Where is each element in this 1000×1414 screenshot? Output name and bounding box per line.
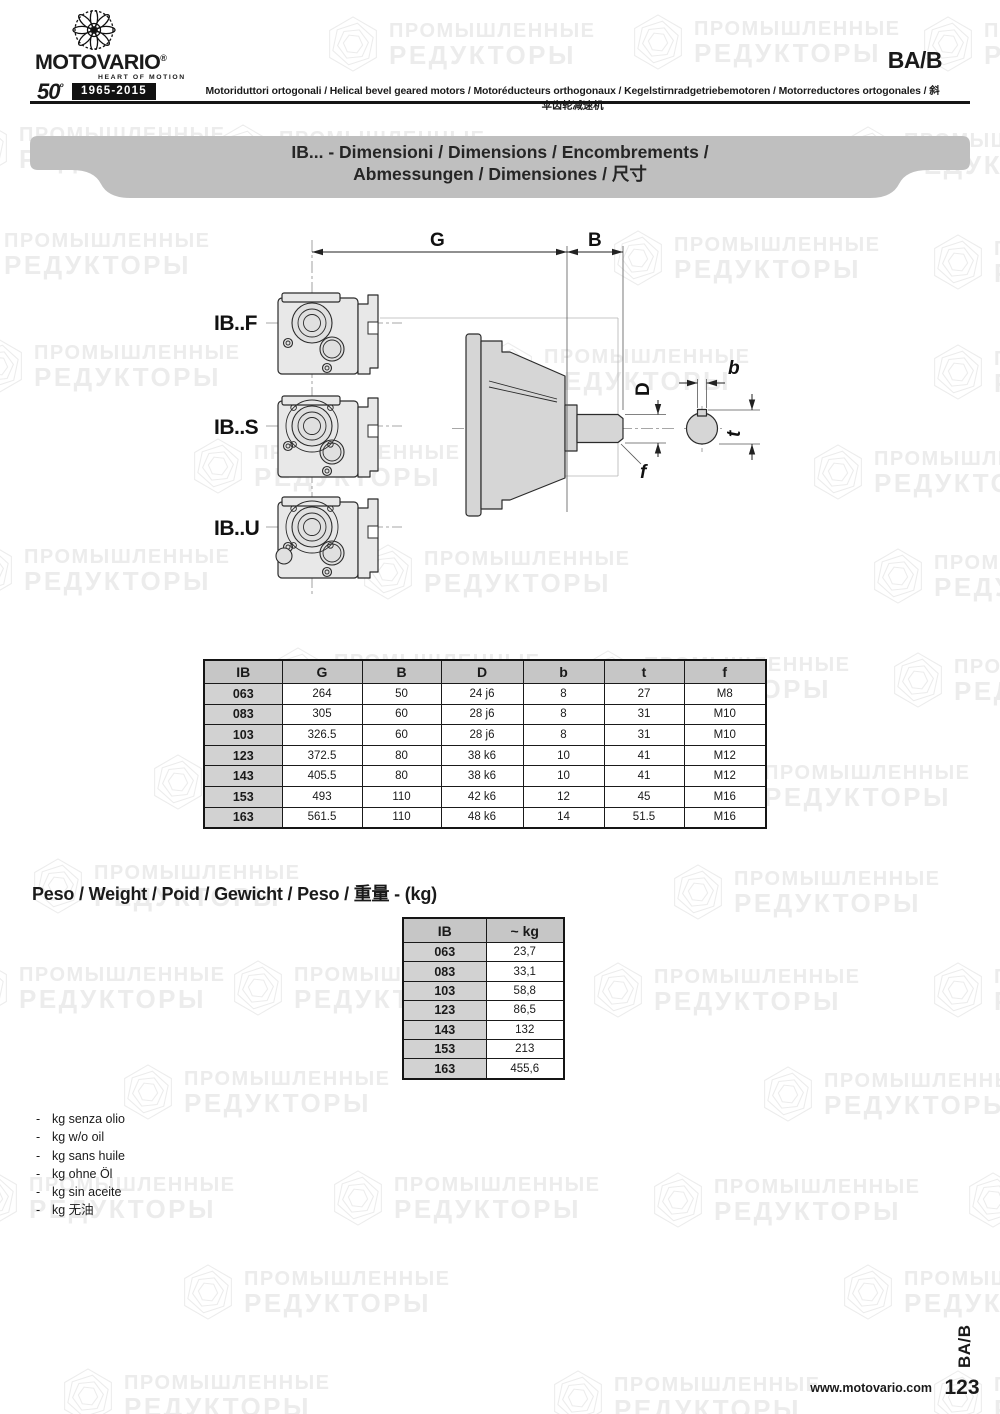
row-label: 123 [403,1001,486,1020]
page-title-line1: IB... - Dimensioni / Dimensions / Encomb… [30,142,970,164]
row-label: 143 [403,1020,486,1039]
watermark: ПРОМЫШЛЕННЫЕ РЕДУКТОРЫ [330,1168,601,1228]
note-dash: - [36,1201,52,1219]
cell: 33,1 [486,962,564,981]
note-line: -kg senza olio [36,1110,125,1128]
row-label: 163 [204,807,282,828]
watermark: ПРОМЫШЛЕННЫЕ РЕДУКТОРЫ [760,1064,1000,1124]
note-text: kg ohne Öl [52,1165,112,1183]
note-dash: - [36,1128,52,1146]
watermark-text: ПРОМЫШЛЕННЫЕ РЕДУКТОРЫ [874,448,1000,497]
note-text: kg sans huile [52,1147,125,1165]
cell: 42 k6 [441,786,523,807]
table-row: 103326.56028 j6831M10 [204,725,766,746]
watermark: ПРОМЫШЛЕННЫЕ РЕДУКТОРЫ [630,12,901,72]
gearbox-front-view-S [278,396,378,477]
note-dash: - [36,1165,52,1183]
cell: 31 [604,725,684,746]
watermark: ПРОМЫШЛЕННЫЕ РЕДУКТОРЫ [60,1366,331,1414]
dim-label-D: D [633,382,654,396]
watermark-text: ПРОМЫШЛЕННЫЕ РЕДУКТОРЫ [994,966,1000,1015]
watermark: ПРОМЫШЛЕННЫЕ РЕДУКТОРЫ [840,1262,1000,1322]
watermark: ПРОМЫШЛЕННЫЕ РЕДУКТОРЫ [930,960,1000,1020]
column-header: IB [204,660,282,684]
shaft-key-section [687,410,718,445]
anniversary-years-badge: 1965-2015 [72,83,156,100]
side-section-code: BA/B [948,1324,982,1368]
watermark: ПРОМЫШЛЕННЫЕ РЕДУКТОРЫ [325,14,596,74]
note-line: -kg 无油 [36,1201,125,1219]
variant-label-F: IB..F [214,312,258,335]
cell: 38 k6 [441,745,523,766]
cell: 372.5 [282,745,362,766]
hexagon-swirl-icon [590,960,646,1020]
page-title-line2: Abmessungen / Dimensiones / 尺寸 [30,164,970,186]
column-header: G [282,660,362,684]
column-header: ~ kg [486,918,564,943]
watermark: ПРОМЫШЛЕННЫЕ РЕДУКТОРЫ [0,224,211,284]
watermark-text: ПРОМЫШЛЕННЫЕ РЕДУКТОРЫ [934,552,1000,601]
note-text: kg senza olio [52,1110,125,1128]
cell: 41 [604,745,684,766]
hexagon-swirl-icon [60,1366,116,1414]
cell: 24 j6 [441,684,523,705]
watermark-text: ПРОМЫШЛЕННЫЕ РЕДУКТОРЫ [994,238,1000,287]
table-row: 163561.511048 k61451.5M16 [204,807,766,828]
watermark-text: ПРОМЫШЛЕННЫЕ РЕДУКТОРЫ [984,20,1000,69]
table-row: 0833056028 j6831M10 [204,704,766,725]
dim-label-B: B [588,230,602,251]
hexagon-swirl-icon [180,1262,236,1322]
cell: M10 [684,725,766,746]
gearbox-front-view-U [276,497,378,578]
watermark: ПРОМЫШЛЕННЫЕ РЕДУКТОРЫ [965,1170,1000,1230]
table-row: 143405.58038 k61041M12 [204,766,766,787]
hexagon-swirl-icon [630,12,686,72]
cell: 14 [523,807,604,828]
table-row: 123372.58038 k61041M12 [204,745,766,766]
weight-heading: Peso / Weight / Poid / Gewicht / Peso / … [32,880,437,906]
cell: M16 [684,807,766,828]
hexagon-swirl-icon [0,118,11,178]
note-text: kg sin aceite [52,1183,121,1201]
row-label: 153 [403,1039,486,1058]
cell: 51.5 [604,807,684,828]
watermark-text: ПРОМЫШЛЕННЫЕ РЕДУКТОРЫ [389,20,596,69]
hexagon-swirl-icon [325,14,381,74]
watermark-text: ПРОМЫШЛЕННЫЕ РЕДУКТОРЫ [394,1174,601,1223]
section-code: BA/B [888,47,942,74]
row-label: 143 [204,766,282,787]
column-header: B [362,660,441,684]
hexagon-swirl-icon [670,862,726,922]
cell: M16 [684,786,766,807]
variant-label-U: IB..U [214,517,259,540]
table-row: 163455,6 [403,1059,564,1079]
page-number: 123 [942,1376,982,1400]
footer-url: www.motovario.com [700,1381,932,1395]
cell: 80 [362,766,441,787]
table-row: 08333,1 [403,962,564,981]
cell: 8 [523,725,604,746]
row-label: 063 [204,684,282,705]
note-line: -kg sans huile [36,1147,125,1165]
dim-label-t: t [724,430,745,437]
column-header: t [604,660,684,684]
watermark: ПРОМЫШЛЕННЫЕ РЕДУКТОРЫ [590,960,861,1020]
header-divider [30,101,970,104]
dim-label-G: G [430,230,445,251]
watermark: ПРОМЫШЛЕННЫЕ РЕДУКТОРЫ [670,862,941,922]
cell: 27 [604,684,684,705]
column-header: IB [403,918,486,943]
cell: 58,8 [486,981,564,1000]
watermark-text: ПРОМЫШЛЕННЫЕ РЕДУКТОРЫ [904,1268,1000,1317]
dim-label-b: b [728,358,740,379]
note-line: -kg ohne Öl [36,1165,125,1183]
registered-mark: ® [160,53,166,63]
table-row: 06323,7 [403,943,564,962]
cell: 28 j6 [441,704,523,725]
cell: M10 [684,704,766,725]
note-dash: - [36,1147,52,1165]
table-row: 12386,5 [403,1001,564,1020]
hexagon-swirl-icon [230,958,286,1018]
cell: 110 [362,807,441,828]
cell: 50 [362,684,441,705]
hexagon-swirl-icon [550,1368,606,1414]
note-dash: - [36,1110,52,1128]
column-header: f [684,660,766,684]
watermark-text: ПРОМЫШЛЕННЫЕ РЕДУКТОРЫ [734,868,941,917]
cell: 110 [362,786,441,807]
weight-table: IB~ kg06323,708333,110358,812386,5143132… [402,917,565,1080]
watermark-text: ПРОМЫШЛЕННЫЕ РЕДУКТОРЫ [654,966,861,1015]
watermark: ПРОМЫШЛЕННЫЕ РЕДУКТОРЫ [650,1170,921,1230]
table-header-row: IBGBDbtf [204,660,766,684]
hexagon-swirl-icon [965,1170,1000,1230]
table-row: 0632645024 j6827M8 [204,684,766,705]
dim-label-f: f [640,462,648,483]
note-text: kg 无油 [52,1201,94,1219]
watermark-text: ПРОМЫШЛЕННЫЕ РЕДУКТОРЫ [714,1176,921,1225]
cell: 45 [604,786,684,807]
cell: 455,6 [486,1059,564,1079]
hexagon-swirl-icon [810,442,866,502]
column-header: b [523,660,604,684]
cell: 8 [523,684,604,705]
row-label: 063 [403,943,486,962]
hexagon-swirl-icon [930,232,986,292]
gearbox-front-view-F [278,293,378,374]
hexagon-swirl-icon [650,1170,706,1230]
watermark-text: ПРОМЫШЛЕННЫЕ РЕДУКТОРЫ [994,348,1000,397]
hexagon-swirl-icon [870,546,926,606]
note-dash: - [36,1183,52,1201]
watermark: ПРОМЫШЛЕННЫЕ РЕДУКТОРЫ [870,546,1000,606]
cell: 493 [282,786,362,807]
watermark-text: ПРОМЫШЛЕННЫЕ РЕДУКТОРЫ [19,964,226,1013]
row-label: 103 [403,981,486,1000]
cell: 405.5 [282,766,362,787]
note-line: -kg sin aceite [36,1183,125,1201]
row-label: 083 [403,962,486,981]
cell: M12 [684,766,766,787]
hexagon-swirl-icon [930,960,986,1020]
watermark-text: ПРОМЫШЛЕННЫЕ РЕДУКТОРЫ [764,762,971,811]
brand-name: MOTOVARIO® [35,50,166,75]
watermark-text: ПРОМЫШЛЕННЫЕ РЕДУКТОРЫ [954,656,1000,705]
variant-label-S: IB..S [214,416,259,439]
cell: 213 [486,1039,564,1058]
gearbox-side-view [466,334,623,516]
row-label: 123 [204,745,282,766]
hexagon-swirl-icon [890,650,946,710]
cell: 28 j6 [441,725,523,746]
row-label: 083 [204,704,282,725]
hexagon-swirl-icon [0,540,16,600]
row-label: 163 [403,1059,486,1079]
watermark: ПРОМЫШЛЕННЫЕ РЕДУКТОРЫ [930,232,1000,292]
page-title: IB... - Dimensioni / Dimensions / Encomb… [30,142,970,185]
column-header: D [441,660,523,684]
note-line: -kg w/o oil [36,1128,125,1146]
watermark: ПРОМЫШЛЕННЫЕ РЕДУКТОРЫ [120,1062,391,1122]
table-row: 153213 [403,1039,564,1058]
cell: 86,5 [486,1001,564,1020]
watermark: ПРОМЫШЛЕННЫЕ РЕДУКТОРЫ [810,442,1000,502]
watermark: ПРОМЫШЛЕННЫЕ РЕДУКТОРЫ [0,958,226,1018]
cell: 10 [523,766,604,787]
row-label: 103 [204,725,282,746]
cell: 31 [604,704,684,725]
notes-list: -kg senza olio-kg w/o oil-kg sans huile-… [36,1110,125,1220]
cell: 561.5 [282,807,362,828]
cell: 305 [282,704,362,725]
row-label: 153 [204,786,282,807]
cell: 60 [362,725,441,746]
hexagon-swirl-icon [330,1168,386,1228]
watermark-text: ПРОМЫШЛЕННЫЕ РЕДУКТОРЫ [4,230,211,279]
cell: 12 [523,786,604,807]
cell: M12 [684,745,766,766]
hexagon-swirl-icon [0,1168,21,1228]
hexagon-swirl-icon [150,752,206,812]
table-row: 10358,8 [403,981,564,1000]
dimension-drawing: IB..F IB..S IB..U G B D b t f [195,212,805,652]
table-row: 15349311042 k61245M16 [204,786,766,807]
cell: 8 [523,704,604,725]
table-row: 143132 [403,1020,564,1039]
cell: 80 [362,745,441,766]
cell: 38 k6 [441,766,523,787]
watermark-text: ПРОМЫШЛЕННЫЕ РЕДУКТОРЫ [124,1372,331,1414]
watermark-text: ПРОМЫШЛЕННЫЕ РЕДУКТОРЫ [184,1068,391,1117]
page-subtitle: Motoriduttori ortogonali / Helical bevel… [204,82,941,112]
watermark: ПРОМЫШЛЕННЫЕ РЕДУКТОРЫ [180,1262,451,1322]
hexagon-swirl-icon [840,1262,896,1322]
watermark-text: ПРОМЫШЛЕННЫЕ РЕДУКТОРЫ [244,1268,451,1317]
cell: 23,7 [486,943,564,962]
dimensions-table: IBGBDbtf0632645024 j6827M80833056028 j68… [203,659,767,829]
cell: 41 [604,766,684,787]
cell: M8 [684,684,766,705]
cell: 264 [282,684,362,705]
hexagon-swirl-icon [0,958,11,1018]
motovario-flower-icon [70,10,118,50]
watermark-text: ПРОМЫШЛЕННЫЕ РЕДУКТОРЫ [994,1374,1000,1414]
cell: 132 [486,1020,564,1039]
cell: 60 [362,704,441,725]
watermark: ПРОМЫШЛЕННЫЕ РЕДУКТОРЫ [890,650,1000,710]
hexagon-swirl-icon [0,336,26,396]
note-text: kg w/o oil [52,1128,104,1146]
cell: 10 [523,745,604,766]
hexagon-swirl-icon [120,1062,176,1122]
cell: 48 k6 [441,807,523,828]
hexagon-swirl-icon [760,1064,816,1124]
table-header-row: IB~ kg [403,918,564,943]
watermark: ПРОМЫШЛЕННЫЕ РЕДУКТОРЫ [930,342,1000,402]
hexagon-swirl-icon [930,342,986,402]
cell: 326.5 [282,725,362,746]
extension-lines [567,246,760,512]
brand-tagline: HEART OF MOTION [98,74,186,81]
watermark-text: ПРОМЫШЛЕННЫЕ РЕДУКТОРЫ [824,1070,1000,1119]
watermark-text: ПРОМЫШЛЕННЫЕ РЕДУКТОРЫ [694,18,901,67]
catalog-page: ПРОМЫШЛЕННЫЕ РЕДУКТОРЫ ПРОМЫШЛЕННЫЕ РЕДУ… [0,0,1000,1414]
